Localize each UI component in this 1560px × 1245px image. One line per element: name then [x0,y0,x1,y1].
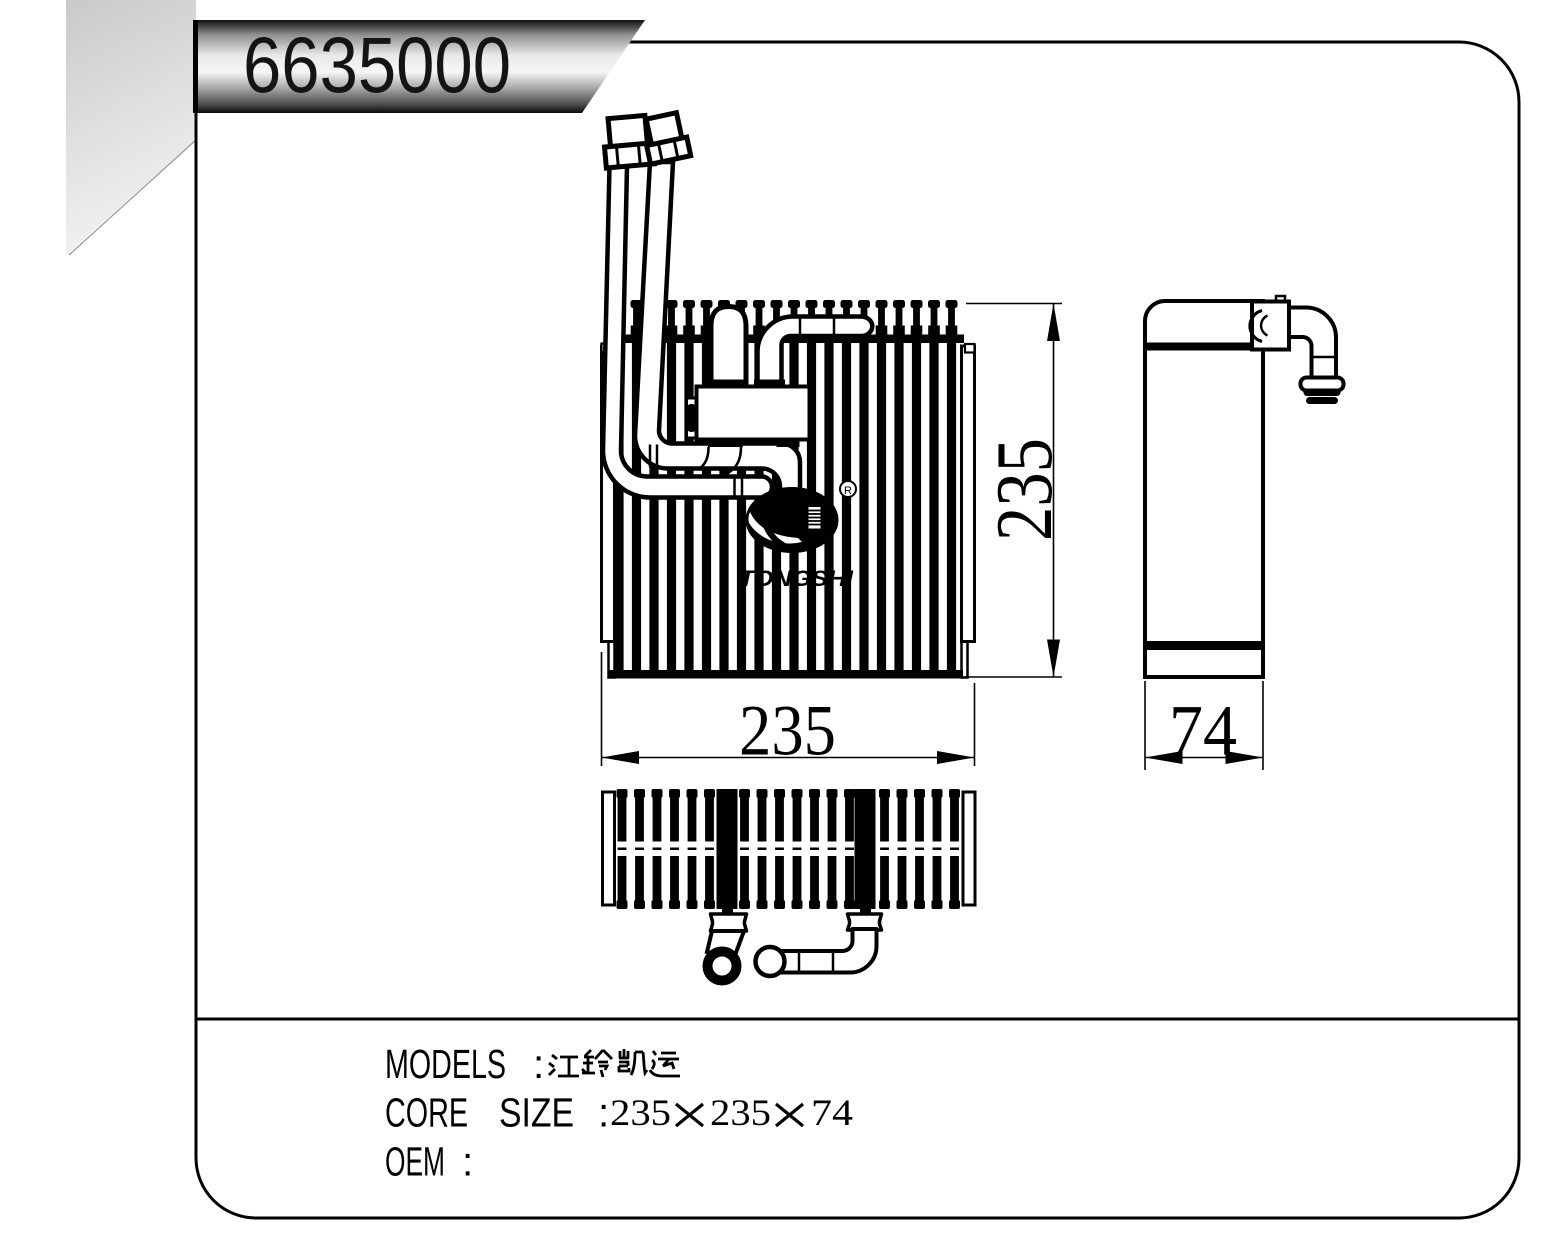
svg-text::: : [462,1139,473,1185]
svg-text:TONGSHI: TONGSHI [739,566,854,591]
svg-text:OEM: OEM [385,1139,445,1185]
svg-text:235: 235 [739,691,836,771]
svg-text:R: R [844,485,852,497]
svg-text::: : [533,1041,544,1087]
svg-text:CORE: CORE [385,1090,468,1136]
svg-text::: : [598,1090,609,1136]
svg-text:74: 74 [1169,691,1237,771]
svg-text:235: 235 [610,1093,671,1134]
svg-text:6635000: 6635000 [243,20,511,109]
svg-text:74: 74 [811,1093,853,1134]
svg-text:235: 235 [710,1093,771,1134]
svg-text:MODELS: MODELS [385,1041,506,1087]
svg-text:SIZE: SIZE [499,1090,574,1136]
svg-text:235: 235 [979,438,1069,541]
